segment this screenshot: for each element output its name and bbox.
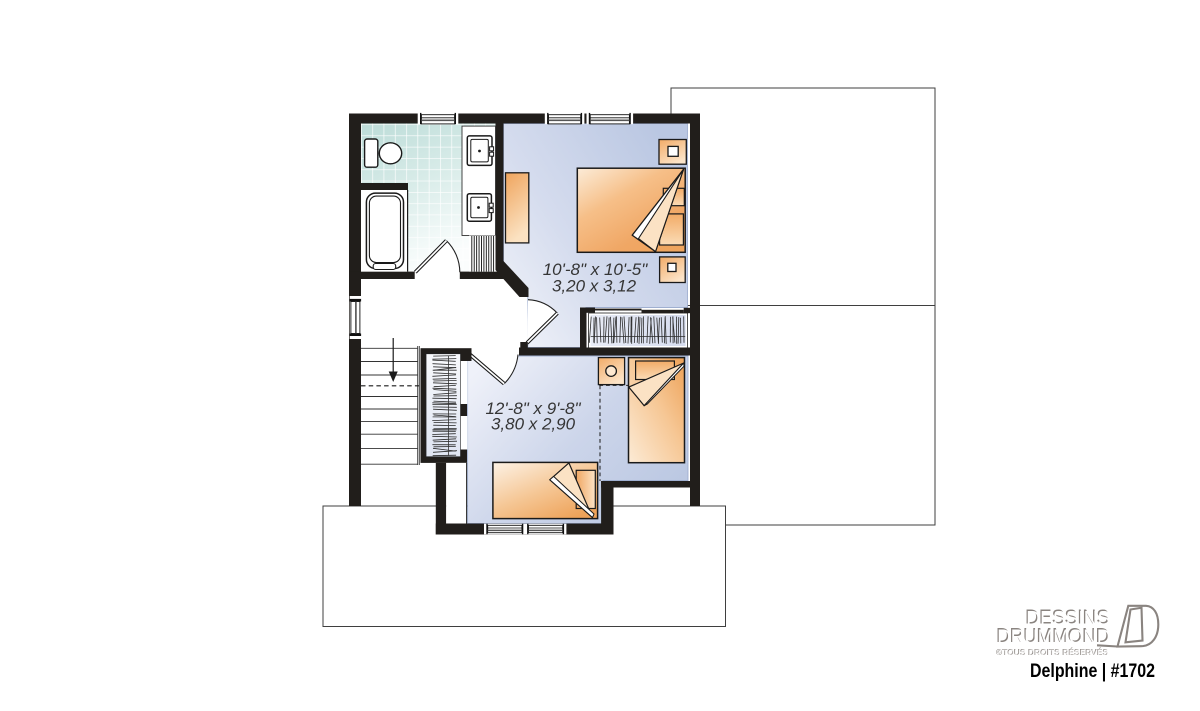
- svg-text:3,80 x 2,90: 3,80 x 2,90: [491, 415, 576, 434]
- svg-text:Delphine | #1702: Delphine | #1702: [1030, 660, 1155, 682]
- svg-text:DRUMMOND: DRUMMOND: [997, 626, 1110, 648]
- svg-text:©TOUS DROITS RÉSERVÉS: ©TOUS DROITS RÉSERVÉS: [997, 648, 1109, 658]
- svg-text:3,20 x 3,12: 3,20 x 3,12: [552, 277, 637, 296]
